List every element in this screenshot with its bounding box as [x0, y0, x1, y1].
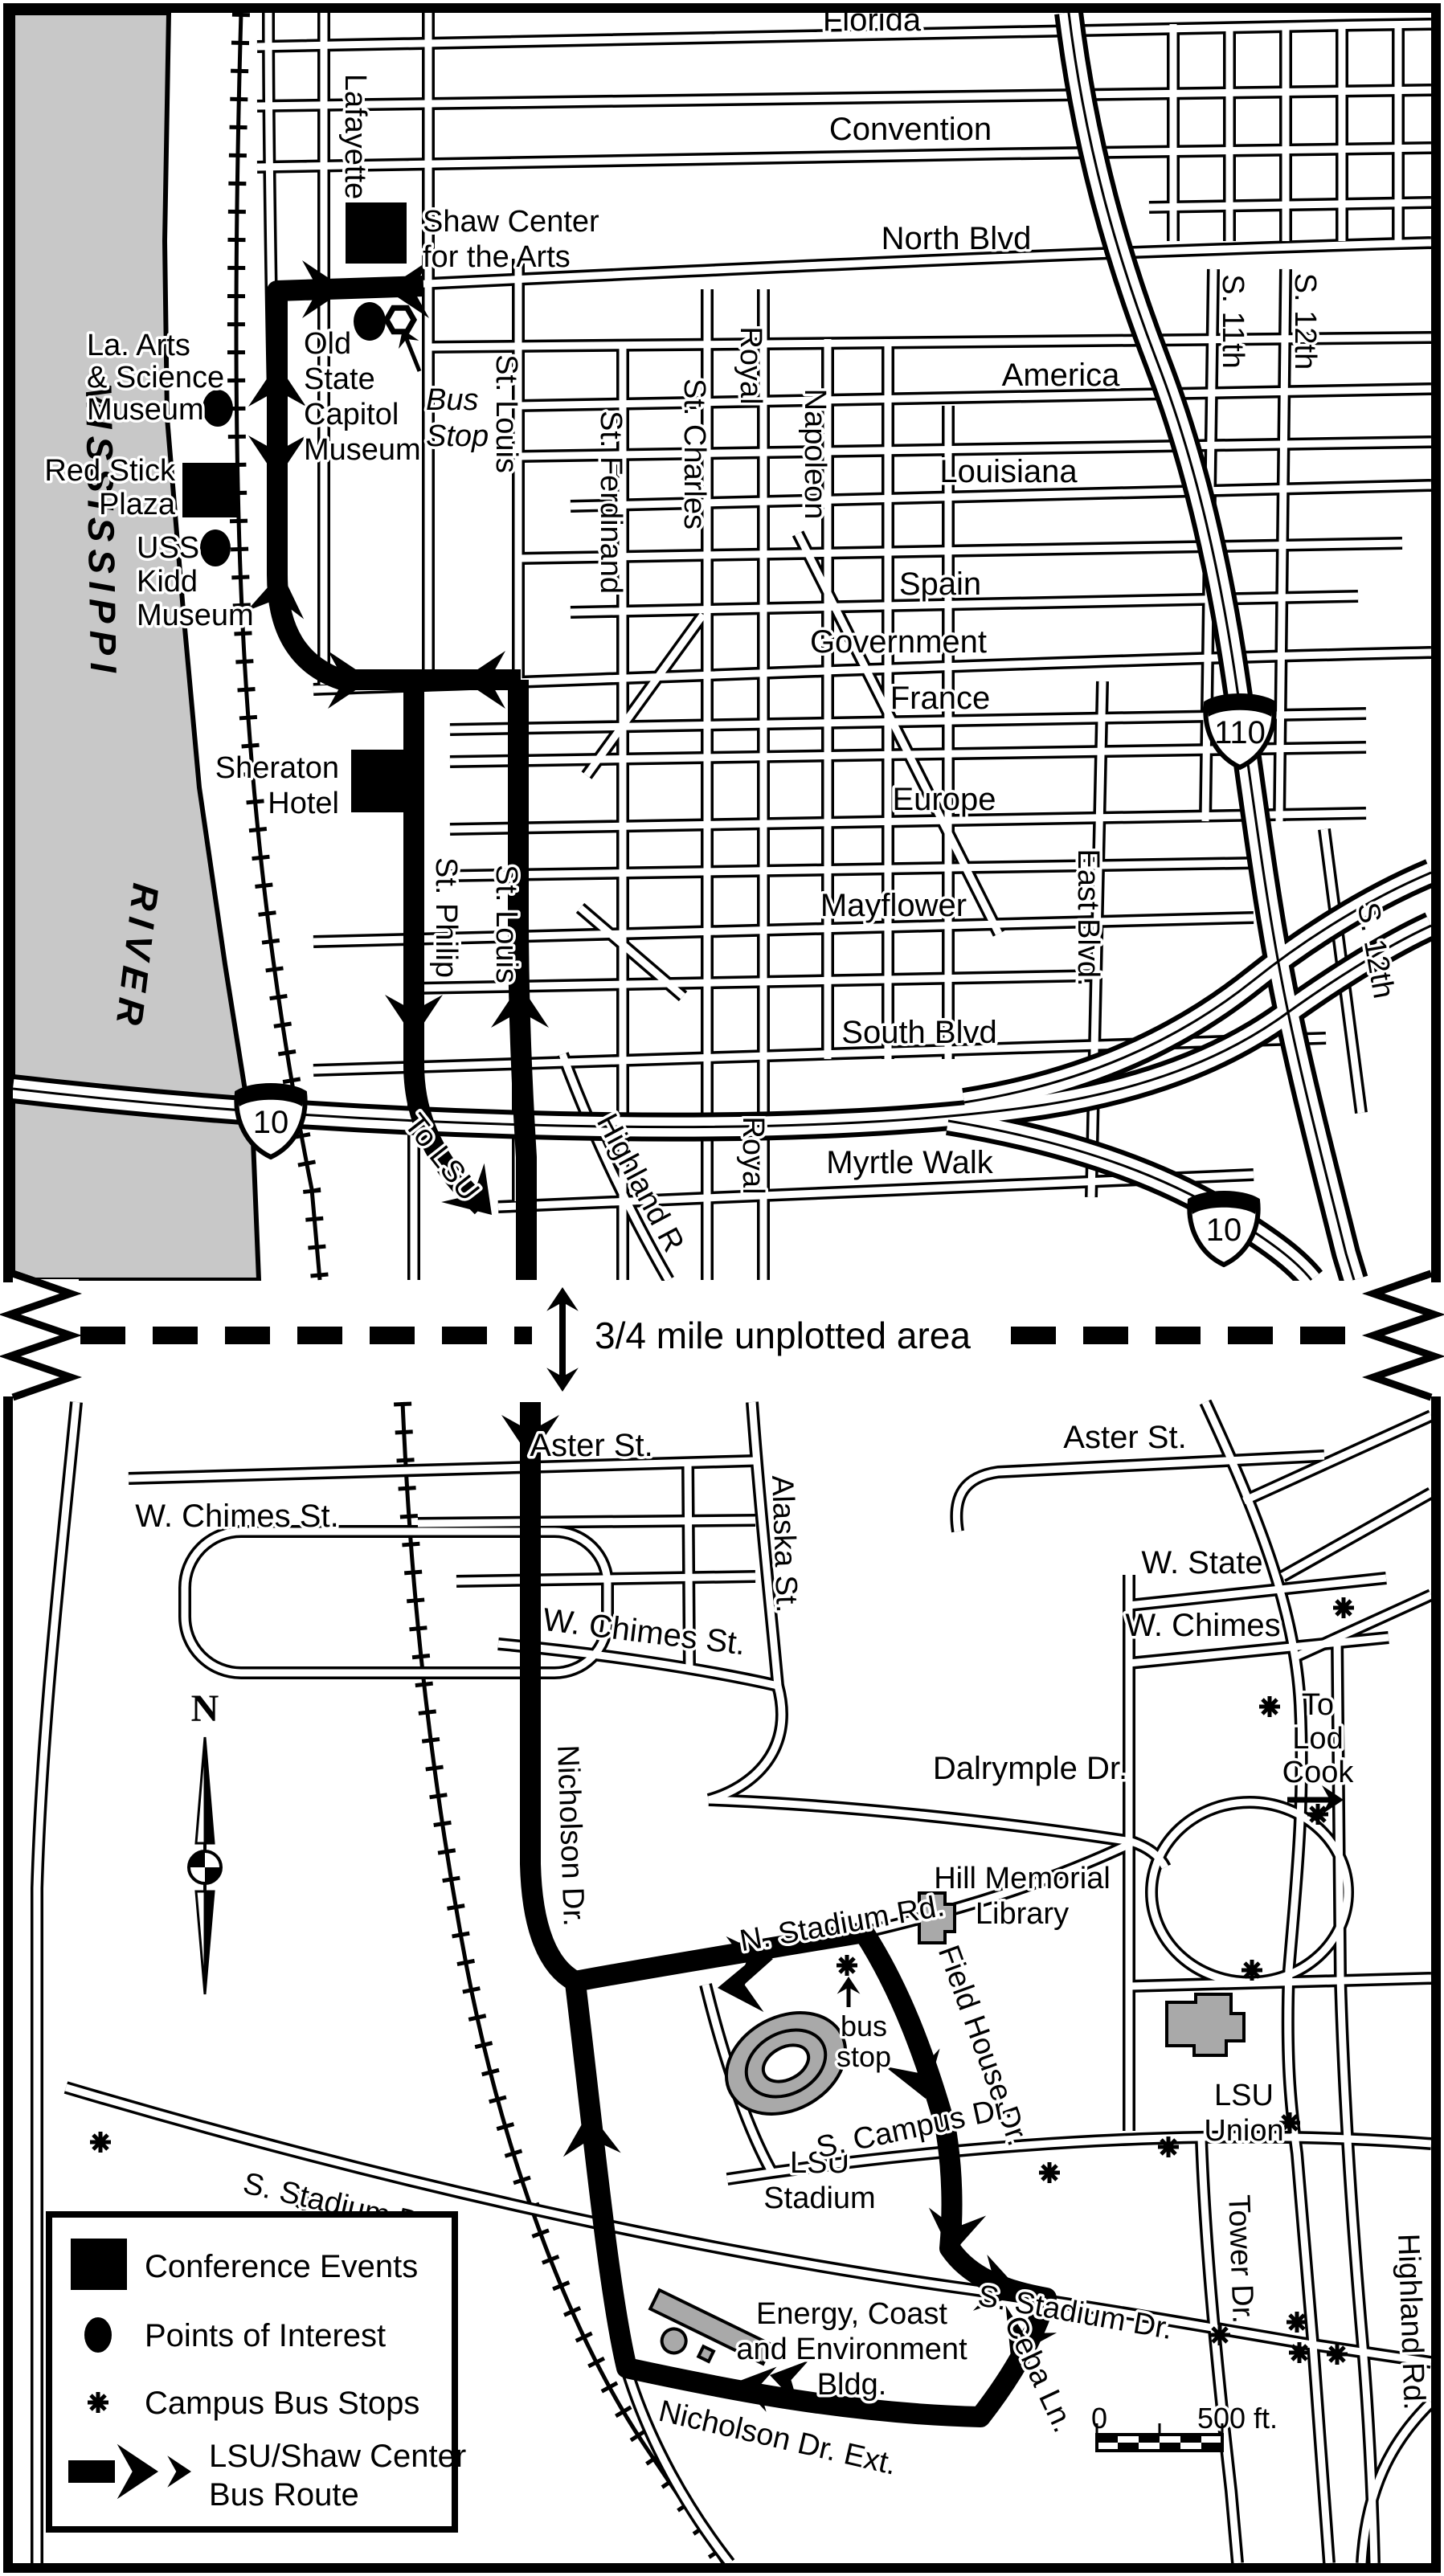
la-arts-museum-label: & Science — [87, 361, 224, 395]
street-label-st-charles: St. Charles — [677, 378, 711, 530]
red-stick-plaza-label: Plaza — [99, 488, 176, 521]
street-label-napoleon: Napoleon — [798, 389, 832, 520]
la-arts-museum-label: Museum — [87, 393, 204, 427]
street-label-spain: Spain — [899, 566, 981, 602]
unplotted-area-divider: 3/4 mile unplotted area — [0, 1274, 1444, 1400]
street-label-st-louis-upper: St. Louis — [489, 354, 523, 473]
uss-kidd-label: Museum — [137, 599, 254, 632]
energy-building-label: Energy, Coast — [756, 2297, 947, 2331]
street-label-aster-right: Aster St. — [1063, 1420, 1186, 1455]
shaw-center-square — [346, 202, 407, 264]
sheraton-square — [351, 750, 411, 812]
uss-kidd-label: Kidd — [137, 565, 198, 599]
to-lod-cook-label: To — [1302, 1688, 1334, 1722]
street-label-myrtle-walk: Myrtle Walk — [826, 1145, 993, 1180]
hill-memorial-label: Hill Memorial — [934, 1862, 1111, 1895]
lsu-stadium-label: Stadium — [763, 2181, 875, 2215]
legend-poi-label: Points of Interest — [145, 2318, 386, 2353]
street-label-s11th: S. 11th — [1216, 274, 1250, 369]
street-label-w-chimes-right: W. Chimes — [1125, 1608, 1280, 1643]
energy-building-label: Bldg. — [817, 2368, 887, 2402]
lsu-union-label: LSU — [1214, 2079, 1274, 2112]
campus-bus-stop-label: bus — [841, 2010, 887, 2042]
scale-distance: 500 ft. — [1197, 2402, 1278, 2435]
legend-poi-icon — [84, 2317, 112, 2353]
red-stick-plaza-label: Red Stick — [44, 454, 176, 488]
hill-memorial-label: Library — [976, 1897, 1069, 1931]
street-label-st-philip: St. Philip — [429, 857, 463, 978]
la-arts-museum-dot — [202, 390, 233, 427]
old-state-capitol-label: Old — [304, 327, 351, 361]
old-state-capitol-label: Capitol — [304, 398, 399, 431]
shaw-center-label: for the Arts — [423, 240, 571, 274]
street-label-south-blvd: South Blvd — [841, 1015, 996, 1050]
north-label: N — [191, 1687, 219, 1730]
street-label-royal-upper: Royal — [734, 326, 767, 404]
street-label-w-chimes-loop: W. Chimes St. — [135, 1499, 338, 1534]
i10-shield-number: 10 — [1206, 1212, 1242, 1248]
bus-route-map: MISSISSIPPI RIVER 3/4 mile unplotted are… — [0, 0, 1444, 2576]
legend: Conference Events Points of Interest Cam… — [49, 2214, 466, 2529]
street-label-aster-left: Aster St. — [530, 1428, 652, 1463]
street-label-europe: Europe — [893, 782, 996, 817]
street-label-st-louis-lower: St. Louis — [489, 865, 523, 983]
street-label-convention: Convention — [829, 112, 992, 147]
uss-kidd-dot — [200, 530, 231, 566]
legend-route-label: Bus Route — [209, 2477, 359, 2513]
street-label-nicholson: Nicholson Dr. — [550, 1744, 591, 1927]
legend-bus-stops-label: Campus Bus Stops — [145, 2386, 419, 2421]
street-label-mayflower: Mayflower — [820, 888, 967, 923]
shaw-center-label: Shaw Center — [423, 205, 599, 239]
street-label-north-blvd: North Blvd — [882, 221, 1032, 256]
campus-bus-stop-label: stop — [837, 2040, 891, 2073]
street-label-lafayette: Lafayette — [338, 74, 372, 199]
to-lod-cook-label: Cook — [1282, 1756, 1355, 1789]
to-lod-cook-label: Lod — [1292, 1722, 1343, 1756]
street-label-tower: Tower Dr. — [1221, 2194, 1260, 2325]
sheraton-label: Sheraton — [215, 751, 339, 785]
street-label-s12th-upper: S. 12th — [1288, 273, 1322, 370]
legend-route-icon — [68, 2460, 115, 2483]
street-label-w-state: W. State — [1141, 1545, 1262, 1580]
i110-shield-number: 110 — [1214, 715, 1266, 750]
bus-stop-label: Bus — [426, 383, 478, 417]
street-label-louisiana: Louisiana — [939, 454, 1078, 489]
legend-conference-icon — [71, 2239, 127, 2290]
legend-conference-label: Conference Events — [145, 2249, 418, 2284]
street-label-america: America — [1002, 358, 1120, 393]
uss-kidd-label: USS — [137, 531, 199, 565]
downtown-bus-stop-icon — [387, 308, 414, 331]
street-label-highland-rd: Highland Rd. — [1391, 2233, 1431, 2410]
i10-shield-number: 10 — [253, 1105, 289, 1140]
old-state-capitol-dot — [354, 302, 386, 341]
red-stick-plaza-square — [182, 463, 237, 517]
la-arts-museum-label: La. Arts — [87, 329, 190, 362]
old-state-capitol-label: Museum — [304, 433, 421, 467]
sheraton-label: Hotel — [268, 787, 339, 820]
divider-label: 3/4 mile unplotted area — [595, 1315, 971, 1356]
legend-route-label: LSU/Shaw Center — [209, 2439, 466, 2474]
lsu-union-label: Union — [1204, 2114, 1283, 2148]
street-label-royal-lower: Royal — [736, 1116, 770, 1194]
street-label-east-blvd: East Blvd. — [1071, 848, 1105, 986]
street-label-government: Government — [810, 624, 987, 660]
energy-building-label: and Environment — [736, 2333, 967, 2366]
scale-zero: 0 — [1091, 2402, 1107, 2435]
street-label-dalrymple: Dalrymple Dr. — [933, 1751, 1127, 1786]
street-label-alaska: Alaska St. — [765, 1474, 804, 1613]
old-state-capitol-label: State — [304, 362, 375, 396]
bus-stop-label: Stop — [426, 419, 489, 453]
street-label-france: France — [890, 681, 991, 716]
street-label-st-ferdinand: St. Ferdinand — [594, 411, 628, 594]
